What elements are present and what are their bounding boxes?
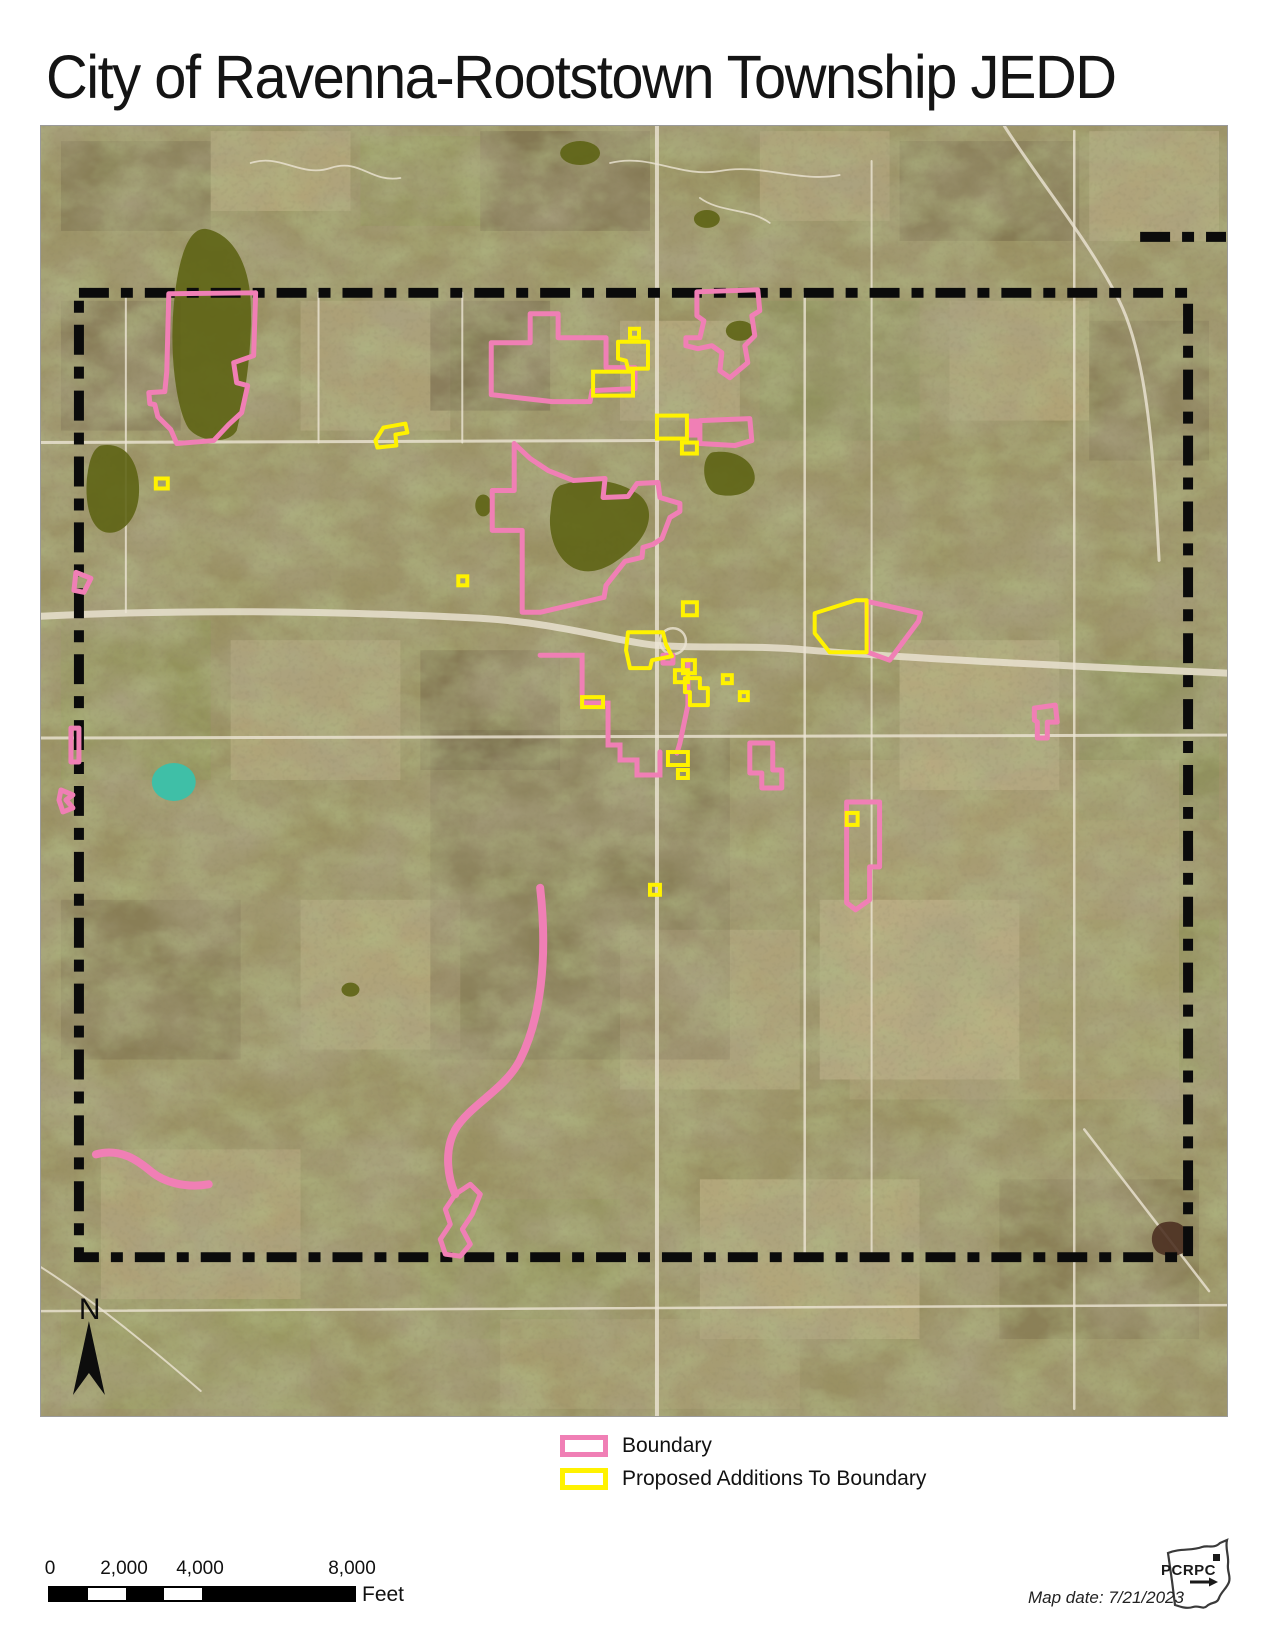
map-date: Map date: 7/21/2023 (1028, 1588, 1184, 1608)
map-title: City of Ravenna-Rootstown Township JEDD (46, 42, 1202, 113)
map-image: N (40, 125, 1228, 1417)
scale-tick-4000: 4,000 (176, 1558, 224, 1580)
scale-unit: Feet (362, 1583, 404, 1607)
proposed-swatch (560, 1468, 608, 1490)
scale-tick-8000: 8,000 (328, 1558, 376, 1580)
legend-item-proposed: Proposed Additions To Boundary (560, 1467, 926, 1491)
legend-label-boundary: Boundary (622, 1434, 712, 1458)
scale-tick-2000: 2,000 (100, 1558, 148, 1580)
page: City of Ravenna-Rootstown Township JEDD (0, 0, 1275, 1650)
scale-bar (48, 1586, 356, 1602)
scale-tick-0: 0 (45, 1558, 56, 1580)
legend-label-proposed: Proposed Additions To Boundary (622, 1467, 926, 1491)
boundary-swatch (560, 1435, 608, 1457)
portage-county-marker (1213, 1554, 1220, 1561)
north-label: N (79, 1293, 101, 1326)
pcrpc-logo-text: PCRPC (1161, 1562, 1216, 1579)
aerial-map: N (41, 126, 1227, 1416)
legend-item-boundary: Boundary (560, 1434, 712, 1458)
